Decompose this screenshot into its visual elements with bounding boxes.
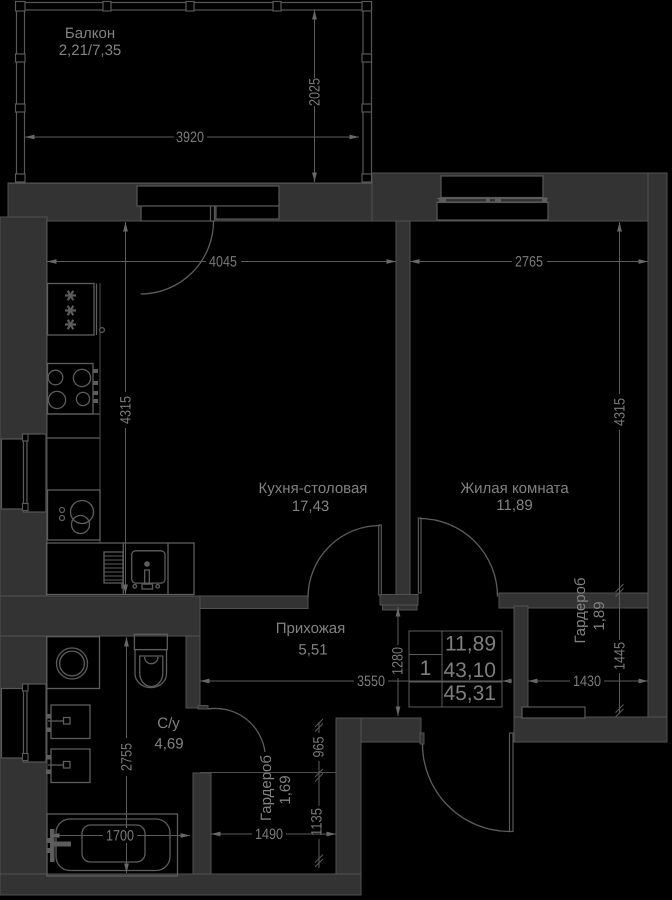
svg-text:1,69: 1,69 <box>277 775 294 804</box>
svg-text:Балкон: Балкон <box>65 25 115 42</box>
svg-text:11,89: 11,89 <box>496 497 532 514</box>
svg-text:2025: 2025 <box>307 78 324 106</box>
svg-text:1,89: 1,89 <box>591 601 608 630</box>
svg-text:2,21/7,35: 2,21/7,35 <box>59 42 122 59</box>
svg-text:4045: 4045 <box>209 254 237 271</box>
svg-text:2755: 2755 <box>119 743 136 771</box>
svg-text:45,31: 45,31 <box>443 682 496 705</box>
svg-text:5,51: 5,51 <box>298 642 327 659</box>
svg-text:Жилая комната: Жилая комната <box>460 480 569 497</box>
svg-text:Гардероб: Гардероб <box>258 755 275 821</box>
svg-text:17,43: 17,43 <box>292 498 330 515</box>
svg-text:2765: 2765 <box>515 254 543 271</box>
svg-text:Гардероб: Гардероб <box>572 578 589 644</box>
svg-text:1135: 1135 <box>309 808 326 836</box>
svg-text:4315: 4315 <box>118 396 135 424</box>
svg-text:С/у: С/у <box>157 715 180 732</box>
svg-text:11,89: 11,89 <box>445 633 496 656</box>
svg-text:1: 1 <box>420 657 432 680</box>
svg-text:1430: 1430 <box>573 673 601 690</box>
svg-text:4315: 4315 <box>612 398 629 426</box>
svg-text:3920: 3920 <box>176 129 204 146</box>
svg-text:1490: 1490 <box>255 826 283 843</box>
svg-text:965: 965 <box>311 737 328 758</box>
svg-text:1445: 1445 <box>612 642 629 670</box>
svg-text:3550: 3550 <box>357 673 385 690</box>
svg-text:Прихожая: Прихожая <box>276 620 346 637</box>
svg-text:Кухня-столовая: Кухня-столовая <box>259 480 368 497</box>
svg-text:1700: 1700 <box>106 828 134 845</box>
svg-text:1280: 1280 <box>390 647 407 675</box>
svg-text:43,10: 43,10 <box>443 659 496 682</box>
svg-text:4,69: 4,69 <box>154 736 183 753</box>
